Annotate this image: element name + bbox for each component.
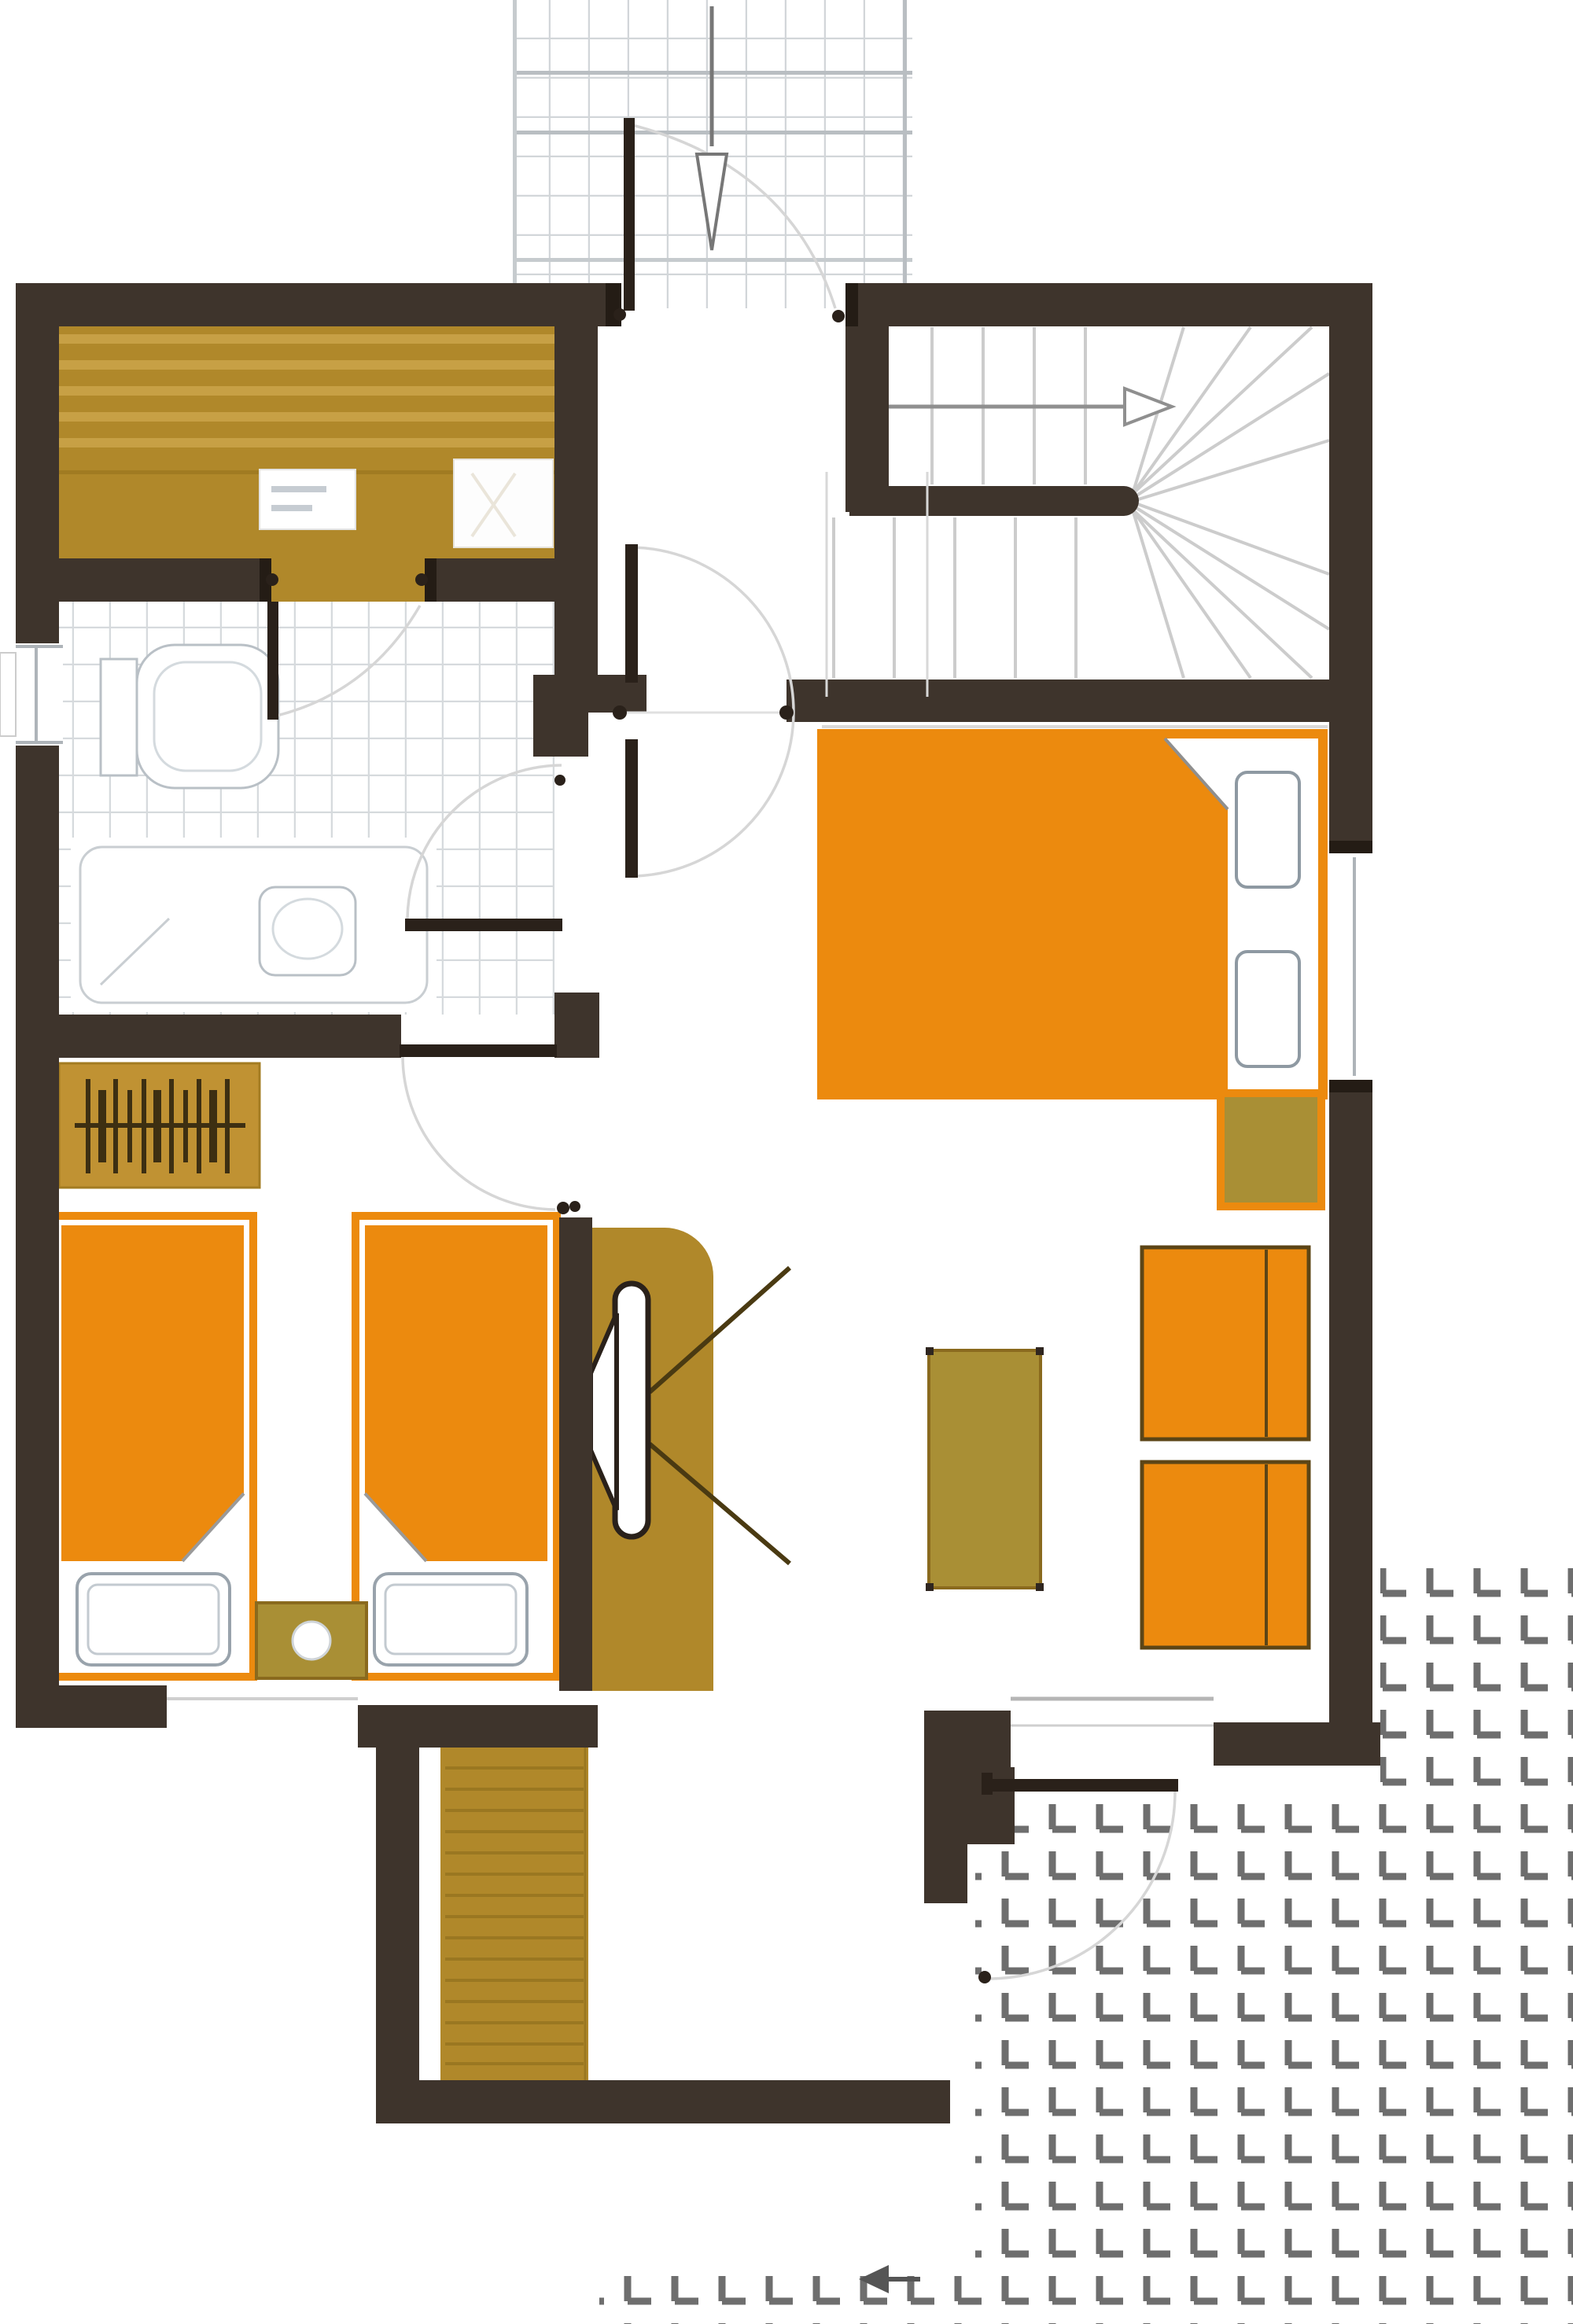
wall-segment — [16, 1685, 167, 1728]
wall-segment — [924, 1844, 967, 1903]
stair-divider-wall — [849, 486, 1139, 516]
wall-segment — [16, 558, 271, 602]
nightstand — [256, 1603, 367, 1678]
armchair — [1142, 1462, 1309, 1648]
bathroom — [59, 602, 554, 1015]
bed-blanket — [61, 1225, 244, 1561]
basement-stairs — [440, 1748, 588, 2080]
terrace-paving — [599, 1557, 1573, 2324]
wall-segment — [376, 2080, 950, 2123]
wall-segment — [845, 326, 889, 512]
staircase — [834, 327, 1329, 678]
toilet — [101, 645, 278, 788]
door-leaf — [625, 739, 638, 878]
wall-segment — [425, 558, 598, 602]
sauna-label-card — [260, 470, 355, 529]
wall-segment — [845, 283, 1372, 326]
stair-treads-lower — [834, 503, 1329, 678]
pillow — [1236, 952, 1299, 1066]
pillow — [77, 1574, 230, 1665]
bedroom-window — [1329, 853, 1372, 1080]
fireplace — [586, 1228, 790, 1691]
wall-segment — [16, 745, 59, 1728]
door-leaf — [624, 118, 635, 311]
door-leaf — [400, 1044, 557, 1057]
door-leaf — [405, 919, 562, 931]
shower-tray — [71, 838, 437, 1012]
wall-segment — [554, 283, 598, 676]
wall-segment — [46, 1015, 401, 1058]
wall-segment — [376, 1705, 419, 2123]
terrace-window-door — [1011, 1692, 1214, 1767]
wall-segment — [559, 1217, 592, 1691]
wall-segment — [554, 993, 599, 1058]
walkway-edge — [903, 0, 907, 308]
wall-segment — [533, 713, 588, 757]
washbasin — [260, 887, 355, 975]
sauna-heater — [454, 459, 553, 547]
bathroom-window — [0, 643, 63, 746]
walkway-joint-line — [515, 258, 912, 262]
fireplace-slot — [615, 1284, 648, 1537]
pillow — [1236, 772, 1299, 887]
wall-segment — [1329, 283, 1372, 852]
wardrobe — [59, 1063, 260, 1188]
wall-segment — [1211, 1722, 1380, 1766]
wall-segment — [1329, 1080, 1372, 1766]
lamp-icon — [293, 1622, 330, 1659]
nightstand — [1221, 1093, 1321, 1206]
door-leaf — [987, 1779, 1178, 1792]
single-bed — [354, 1214, 558, 1678]
twin-bedroom-door — [400, 1044, 580, 1214]
wall-segment — [924, 1711, 1015, 1844]
bed-blanket — [365, 1225, 547, 1561]
wall-segment — [16, 283, 621, 326]
wall-segment — [786, 680, 1372, 722]
door-leaf — [625, 544, 638, 683]
walkway-edge — [513, 0, 517, 308]
pillow — [374, 1574, 527, 1665]
floor-plan — [0, 0, 1573, 2324]
bed-blanket — [827, 738, 1228, 1090]
door-leaf — [267, 602, 278, 720]
double-bed — [820, 727, 1328, 1096]
single-bed — [50, 1214, 255, 1678]
coffee-table — [926, 1347, 1044, 1591]
stair-direction-arrow — [864, 389, 1172, 425]
armchair — [1142, 1247, 1309, 1439]
